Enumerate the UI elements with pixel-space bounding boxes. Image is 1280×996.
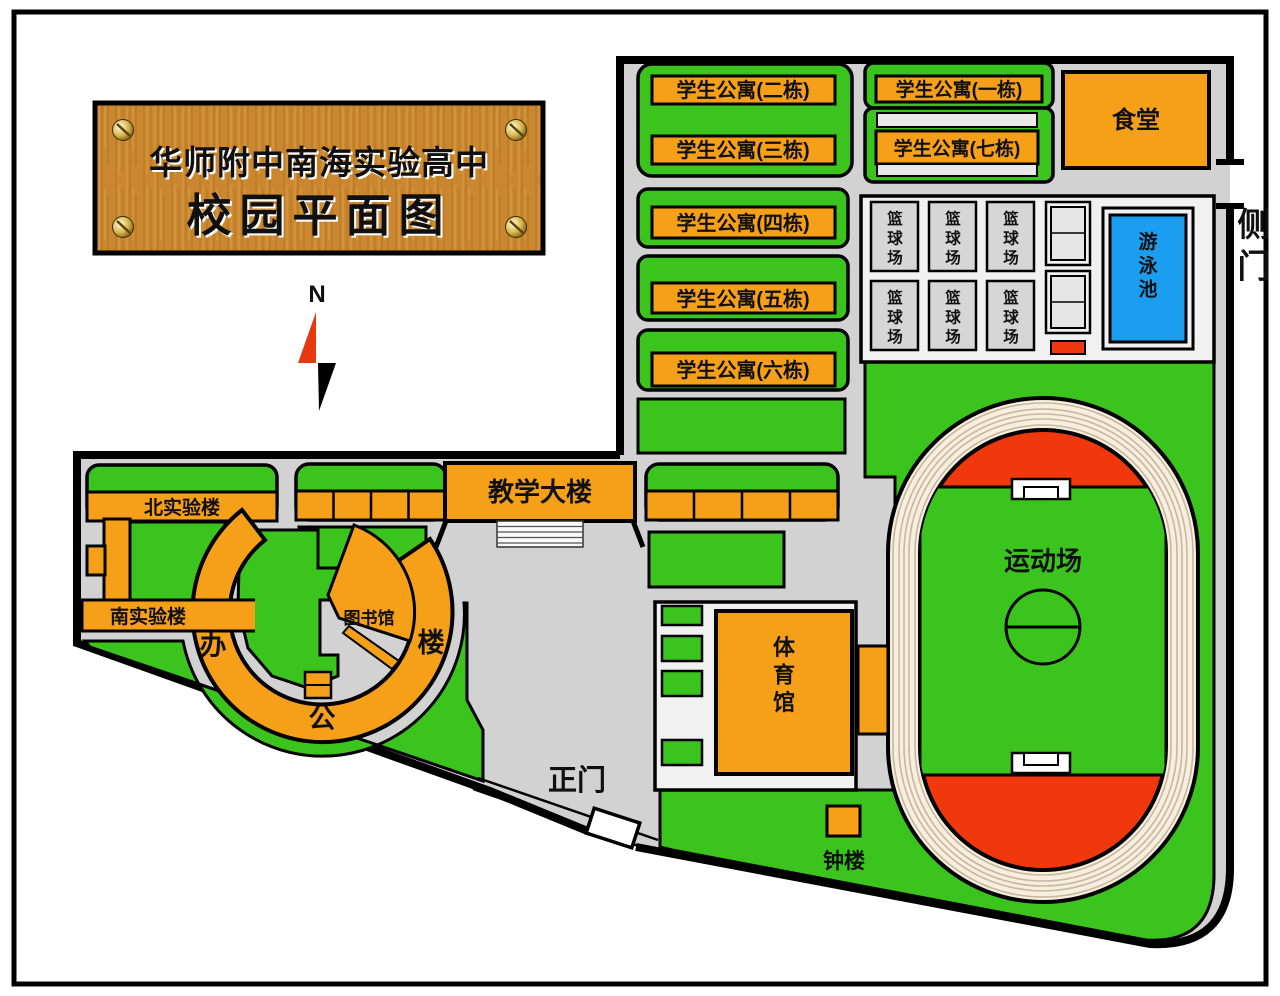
dorm-building-1-label: 学生公寓(一栋) <box>896 78 1023 101</box>
sports-field-label: 运动场 <box>1004 546 1082 576</box>
goal-area-north <box>1012 479 1070 499</box>
campus-map-image: 华师附中南海实验高中 校园平面图 N 学生公寓(二栋) 学生公寓(三栋) 学生公… <box>0 0 1280 996</box>
basketball-court-label: 篮球场 <box>944 209 961 267</box>
dorm-group-2-3: 学生公寓(二栋) 学生公寓(三栋) <box>638 64 852 176</box>
campus-map-canvas: 华师附中南海实验高中 校园平面图 N 学生公寓(二栋) 学生公寓(三栋) 学生公… <box>0 0 1280 996</box>
utility-block <box>1046 202 1090 265</box>
office-char-2: 公 <box>309 704 336 734</box>
office-char-1: 办 <box>200 631 227 661</box>
dorm-building-5-label: 学生公寓(五栋) <box>676 287 809 311</box>
sign-title-line1: 华师附中南海实验高中 <box>149 144 489 181</box>
swimming-pool-label: 游泳池 <box>1138 230 1158 301</box>
gymnasium-complex: 体育馆 <box>655 602 888 790</box>
arc-inner-structure <box>305 672 331 698</box>
compass-north-label: N <box>308 281 325 308</box>
clock-tower-building <box>827 806 860 836</box>
north-lab-label: 北实验楼 <box>144 496 220 519</box>
dorm-group-5: 学生公寓(五栋) <box>638 256 848 320</box>
swimming-pool: 游泳池 <box>1103 208 1193 349</box>
lawn-block <box>649 532 784 587</box>
dorm-group-6: 学生公寓(六栋) <box>638 330 848 453</box>
south-lab-label: 南实验楼 <box>110 605 186 628</box>
office-char-3: 楼 <box>418 628 445 658</box>
lawn-strip <box>638 399 845 453</box>
lab-annex <box>87 546 105 575</box>
basketball-court-label: 篮球场 <box>886 209 903 267</box>
lawn-patch <box>662 671 702 696</box>
sign-board: 华师附中南海实验高中 校园平面图 <box>95 103 543 253</box>
utility-block <box>1046 271 1090 333</box>
sign-title-line2: 校园平面图 <box>186 190 451 241</box>
library-label: 图书馆 <box>344 608 395 628</box>
basketball-court-label: 篮球场 <box>886 288 903 346</box>
lawn-patch <box>662 740 702 765</box>
canteen: 食堂 <box>1063 72 1209 168</box>
dorm-group-4: 学生公寓(四栋) <box>638 189 848 247</box>
dorm-building-6-label: 学生公寓(六栋) <box>676 358 809 382</box>
lab-corridor <box>104 519 130 605</box>
basketball-court-label: 篮球场 <box>1002 288 1019 346</box>
teaching-building-label: 教学大楼 <box>488 477 592 507</box>
soccer-pitch <box>920 487 1166 775</box>
clock-tower-label: 钟楼 <box>823 850 865 873</box>
dorm-building-3-label: 学生公寓(三栋) <box>676 138 809 162</box>
dorm-group-1-7: 学生公寓(一栋) 学生公寓(七栋) <box>865 63 1053 182</box>
sports-field: 运动场 <box>888 398 1198 902</box>
goal-area-south <box>1012 753 1070 773</box>
red-marker <box>1051 341 1085 354</box>
grandstand <box>858 646 888 734</box>
lawn-patch <box>662 606 702 625</box>
dorm-building-7-label: 学生公寓(七栋) <box>894 137 1021 160</box>
main-gate-label: 正门 <box>548 764 606 797</box>
sports-zone: 篮球场 篮球场 篮球场 篮球场 篮球场 篮球场 游泳池 <box>861 196 1214 362</box>
gymnasium-label: 体育馆 <box>773 635 796 715</box>
canteen-label: 食堂 <box>1112 106 1160 134</box>
basketball-court-label: 篮球场 <box>944 288 961 346</box>
stairs <box>497 521 583 547</box>
dorm-building-4-label: 学生公寓(四栋) <box>676 211 809 235</box>
basketball-court-label: 篮球场 <box>1002 209 1019 267</box>
lawn-patch <box>662 636 702 661</box>
dorm-building-2-label: 学生公寓(二栋) <box>676 78 809 102</box>
